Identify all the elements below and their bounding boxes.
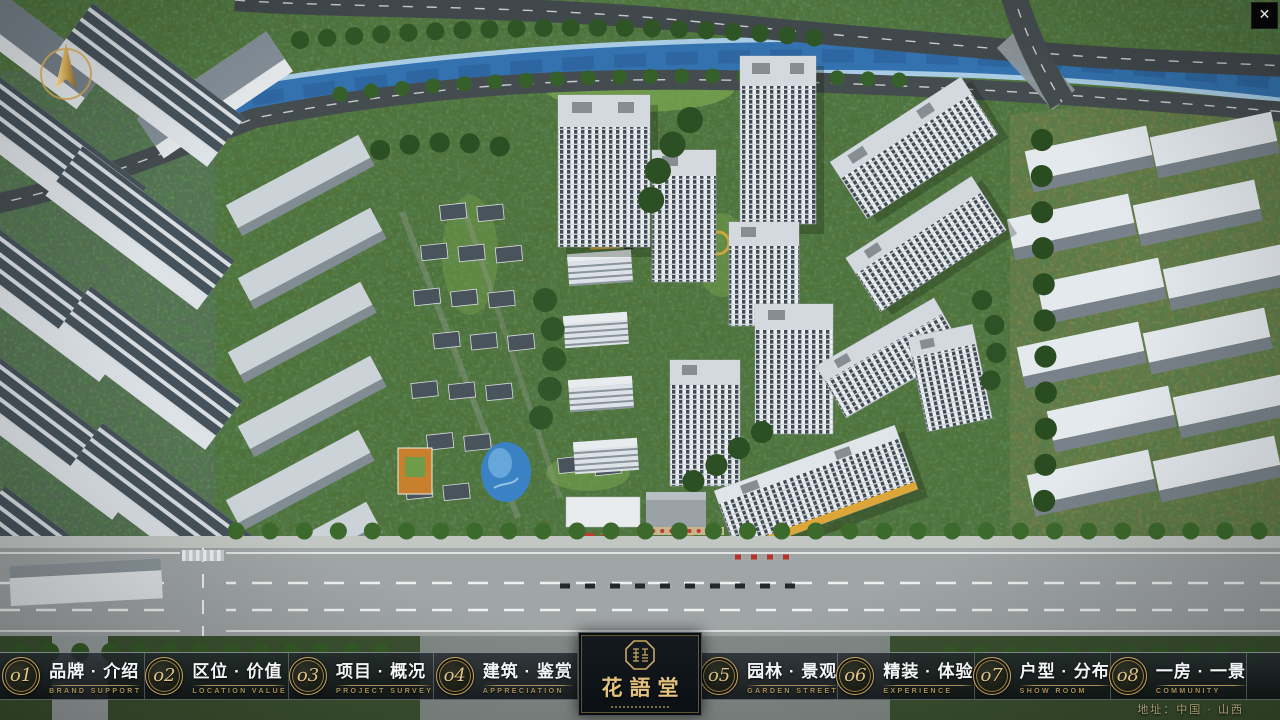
site-plan-render[interactable] (0, 0, 1280, 720)
nav-item-architecture-appreciation[interactable]: o4 建筑 · 鉴赏APPRECIATION (434, 653, 579, 699)
nav-number-badge-8: o8 (1109, 657, 1147, 695)
project-logo-panel[interactable]: 花語堂 (578, 632, 702, 716)
nav-label-zh: 一房 · 一景 (1156, 657, 1248, 682)
gold-divider (1020, 685, 1112, 686)
nav-number-5: o5 (708, 665, 730, 686)
nav-item-project-overview[interactable]: o3 项目 · 概况PROJECT SURVEY (289, 653, 434, 699)
nav-item-interior-experience[interactable]: o6 精装 · 体验EXPERIENCE (838, 653, 974, 699)
nav-item-location-value[interactable]: o2 区位 · 价值LOCATION VALUE (145, 653, 290, 699)
gold-divider (1156, 685, 1248, 686)
nav-label-zh: 项目 · 概况 (336, 657, 433, 682)
address-label: 地址：中国 · 山西 (1137, 701, 1244, 717)
nav-left-group: o1 品牌 · 介绍BRAND SUPPORT o2 区位 · 价值LOCATI… (0, 653, 578, 699)
nav-label-en: BRAND SUPPORT (49, 688, 141, 695)
nav-label-zh: 品牌 · 介绍 (49, 657, 141, 682)
nav-item-garden-landscape[interactable]: o5 园林 · 景观GARDEN STREET (702, 653, 838, 699)
nav-number-4: o4 (444, 665, 466, 686)
nav-label-zh: 园林 · 景观 (747, 657, 839, 682)
nav-number-2: o2 (153, 665, 175, 686)
nav-number-8: o8 (1117, 665, 1139, 686)
nav-label-en: GARDEN STREET (747, 688, 839, 695)
gold-divider (483, 685, 575, 686)
nav-label-en: EXPERIENCE (883, 688, 975, 695)
swimming-pool (481, 442, 531, 502)
nav-label-zh: 建筑 · 鉴赏 (483, 657, 575, 682)
nav-number-badge-4: o4 (436, 657, 474, 695)
gold-divider (336, 685, 433, 686)
gold-divider (747, 685, 839, 686)
site-plan-canvas (0, 0, 1280, 720)
close-button[interactable]: ✕ (1251, 2, 1278, 29)
nav-number-badge-6: o6 (836, 657, 874, 695)
nav-label-en: APPRECIATION (483, 688, 575, 695)
nav-number-badge-5: o5 (700, 657, 738, 695)
nav-number-6: o6 (844, 665, 866, 686)
nav-right-group: o5 园林 · 景观GARDEN STREET o6 精装 · 体验EXPERI… (702, 653, 1280, 699)
nav-number-1: o1 (10, 665, 32, 686)
nav-label-zh: 精装 · 体验 (883, 657, 975, 682)
nav-number-badge-1: o1 (2, 657, 40, 695)
gold-divider (49, 685, 141, 686)
nav-item-floorplan-distribution[interactable]: o7 户型 · 分布SHOW ROOM (975, 653, 1111, 699)
nav-item-room-view[interactable]: o8 一房 · 一景COMMUNITY (1111, 653, 1247, 699)
gold-divider (883, 685, 975, 686)
nav-label-zh: 户型 · 分布 (1020, 657, 1112, 682)
project-logo-title: 花語堂 (595, 672, 686, 702)
compass-icon (34, 38, 98, 104)
nav-number-badge-7: o7 (973, 657, 1011, 695)
nav-label-zh: 区位 · 价值 (192, 657, 287, 682)
nav-label-en: PROJECT SURVEY (336, 688, 433, 695)
nav-number-3: o3 (297, 665, 319, 686)
nav-item-brand-intro[interactable]: o1 品牌 · 介绍BRAND SUPPORT (0, 653, 145, 699)
nav-label-en: COMMUNITY (1156, 688, 1248, 695)
nav-number-7: o7 (980, 665, 1002, 686)
logo-subtitle-line (611, 706, 669, 708)
nav-label-en: LOCATION VALUE (192, 688, 287, 695)
seal-icon (625, 640, 655, 670)
gold-divider (192, 685, 287, 686)
nav-number-badge-3: o3 (289, 657, 327, 695)
nav-number-badge-2: o2 (145, 657, 183, 695)
nav-label-en: SHOW ROOM (1020, 688, 1112, 695)
